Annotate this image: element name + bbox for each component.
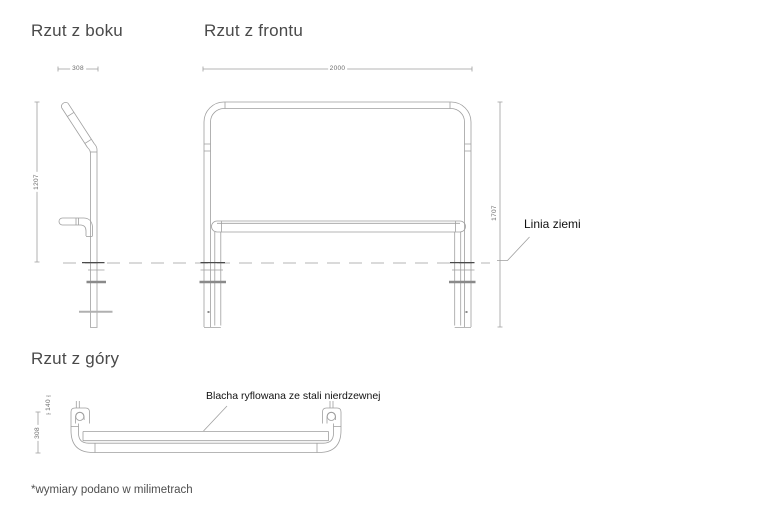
units-footnote: *wymiary podano w milimetrach	[31, 484, 193, 496]
front-height-dimension-value: 1707	[491, 203, 499, 223]
front-view-drawing	[200, 67, 530, 328]
front-ground-anchors	[200, 263, 476, 313]
front-view-title: Rzut z frontu	[204, 21, 303, 41]
side-height-dimension-value: 1207	[33, 172, 41, 192]
front-width-dimension-value: 2000	[328, 65, 348, 73]
ground-line-label: Linia ziemi	[524, 217, 581, 231]
front-frame-tube	[204, 102, 471, 327]
top-view-drawing	[36, 396, 342, 453]
side-view-title: Rzut z boku	[31, 21, 123, 41]
ground-line-leader	[497, 237, 530, 261]
drawing-sheet: Rzut z boku Rzut z frontu Rzut z góry 30…	[0, 0, 778, 515]
top-view-title: Rzut z góry	[31, 349, 119, 369]
front-seat-tube	[212, 221, 466, 232]
side-view-drawing	[35, 67, 113, 328]
top-left-clamp	[71, 401, 90, 424]
side-width-dimension-value: 308	[70, 65, 86, 73]
front-seat-legs	[215, 232, 461, 326]
technical-drawing-svg	[0, 0, 778, 515]
top-offset-dimension-value: 140	[45, 397, 53, 413]
top-depth-dimension-value: 308	[34, 425, 42, 441]
side-backrest-tube	[61, 102, 97, 154]
side-seat-tube	[59, 218, 93, 237]
plate-label-leader	[204, 406, 228, 431]
top-right-clamp	[323, 401, 342, 424]
plate-material-label: Blacha ryflowana ze stali nierdzewnej	[206, 390, 381, 402]
top-plate	[83, 432, 329, 441]
side-ground-anchor	[79, 263, 113, 312]
side-post-tube	[90, 150, 98, 327]
